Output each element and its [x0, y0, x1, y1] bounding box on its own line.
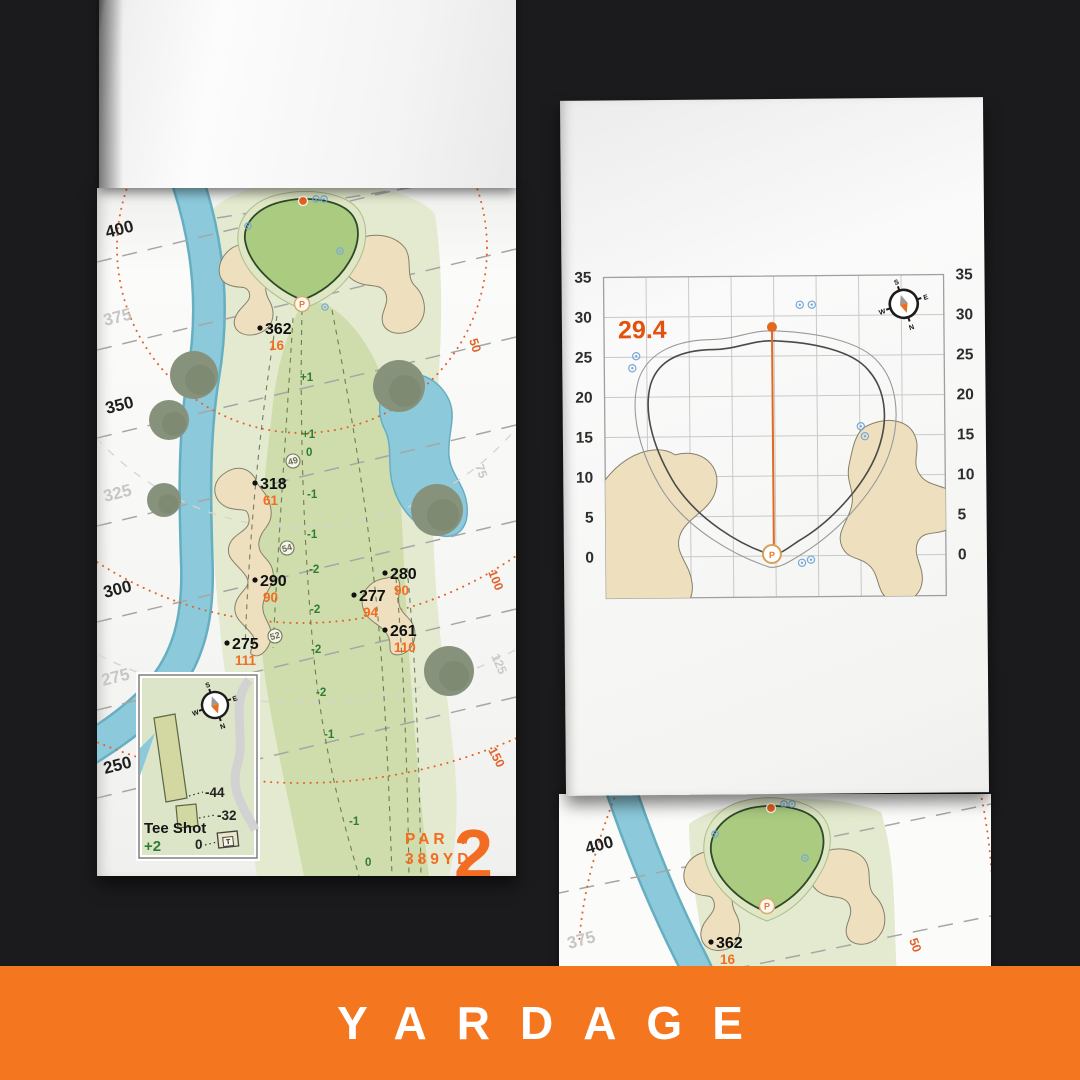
sprinkler-icon — [808, 301, 815, 308]
distance-line-labels: 400 375 350 325 300 275 250 — [99, 217, 135, 778]
axis-tick: 15 — [576, 430, 594, 447]
axis-tick: 35 — [955, 266, 973, 283]
distance-label: 300 — [101, 577, 133, 602]
inset-distance: 0 — [195, 837, 203, 852]
sprinkler-icon — [633, 353, 640, 360]
inset-distance: -44 — [205, 785, 225, 800]
elevation-value: -2 — [309, 564, 319, 576]
pin-position-dot — [767, 322, 777, 332]
axis-tick: 25 — [956, 346, 974, 363]
sprinkler-icon — [629, 365, 636, 372]
sprinkler-icon — [857, 423, 864, 430]
compass-icon: S N E W — [871, 272, 938, 340]
axis-tick: 15 — [957, 426, 975, 443]
elevation-value: +1 — [302, 429, 316, 441]
bunker-right — [839, 420, 961, 603]
carry-distance: 261 — [390, 623, 417, 640]
pin-distance: 16 — [720, 952, 736, 967]
compass-s: S — [893, 279, 900, 287]
carry-distance: 275 — [232, 636, 259, 653]
distance-label: 325 — [101, 481, 133, 506]
banner-title: YARDAGE — [307, 996, 773, 1050]
elevation-value: 0 — [365, 857, 371, 869]
green-depth-value: 29.4 — [618, 316, 667, 344]
bunker-left — [588, 449, 719, 700]
axis-tick: 30 — [956, 306, 973, 323]
compass-w: W — [878, 308, 887, 317]
pin-letter: P — [769, 550, 775, 560]
next-page-preview: P 400 375 362 16 50 — [559, 794, 991, 979]
distance-label: 275 — [99, 665, 131, 690]
axis-tick: 0 — [585, 550, 594, 567]
orange-arc — [579, 794, 619, 944]
elevation-value: -1 — [324, 729, 335, 741]
carry-distance: 362 — [716, 935, 743, 952]
distance-label: 400 — [103, 217, 135, 242]
flipped-blank-page — [99, 0, 516, 188]
elevation-value: -1 — [307, 529, 318, 541]
axis-tick: 20 — [956, 386, 973, 403]
pin-position-dot — [299, 197, 308, 206]
pin-distance: 90 — [394, 583, 409, 598]
arc-label: 125 — [488, 652, 509, 677]
distance-label: 375 — [565, 927, 597, 953]
inset-elevation: +2 — [144, 838, 161, 855]
pin-distance: 90 — [263, 590, 278, 605]
pin-distance: 111 — [235, 653, 257, 668]
green-detail-chart: P 29.4 35 30 25 20 15 10 5 0 35 30 — [560, 97, 989, 796]
compass-e: E — [923, 294, 930, 302]
inset-title: Tee Shot — [144, 820, 206, 837]
tee-box-icon: T — [217, 831, 238, 848]
axis-tick: 25 — [575, 350, 593, 367]
axis-tick: 30 — [575, 310, 592, 327]
carry-distance: 318 — [260, 476, 287, 493]
axis-tick: 20 — [575, 390, 592, 407]
arc-label: 75 — [472, 462, 490, 480]
left-booklet: 400 375 350 325 300 275 250 50 100 150 7… — [85, 0, 525, 880]
elevation-value: 0 — [306, 447, 312, 459]
bunker-right-edge — [947, 490, 989, 599]
carry-distance: 277 — [359, 588, 386, 605]
axis-tick: 0 — [958, 546, 967, 563]
yardage-banner: YARDAGE — [0, 966, 1080, 1080]
axis-tick: 10 — [576, 470, 593, 487]
sprinkler-icon — [798, 559, 805, 566]
arc-label: 100 — [485, 568, 506, 593]
elevation-value: +1 — [300, 372, 314, 384]
pin-distance: 16 — [269, 338, 285, 353]
elevation-value: -1 — [349, 816, 360, 828]
arc-label: 150 — [485, 745, 507, 770]
green-detail-page: P 29.4 35 30 25 20 15 10 5 0 35 30 — [560, 97, 989, 796]
hole-map-page: 400 375 350 325 300 275 250 50 100 150 7… — [97, 188, 516, 876]
yardage-book-photo: 400 375 350 325 300 275 250 50 100 150 7… — [0, 0, 1080, 1080]
hole-map: 400 375 350 325 300 275 250 50 100 150 7… — [97, 188, 516, 876]
elevation-value: -2 — [316, 687, 326, 699]
axis-tick: 35 — [574, 270, 592, 287]
axis-tick: 10 — [957, 466, 974, 483]
sprinkler-icon — [807, 556, 814, 563]
right-booklet: P 400 375 362 16 50 — [557, 99, 993, 985]
axis-ticks-left: 35 30 25 20 15 10 5 0 — [574, 270, 594, 567]
inset-distance: -32 — [217, 808, 237, 823]
sprinkler-icon — [796, 301, 803, 308]
axis-ticks-right: 35 30 25 20 15 10 5 0 — [955, 266, 975, 563]
arc-label: 50 — [906, 936, 924, 954]
elevation-value: -1 — [307, 489, 318, 501]
arc-labels: 50 100 150 75 125 — [466, 337, 509, 770]
axis-tick: 5 — [958, 506, 967, 523]
arc-label: 50 — [466, 337, 484, 355]
pin-letter: P — [764, 902, 770, 912]
orange-arc — [979, 794, 991, 954]
pin-position-dot — [767, 804, 776, 813]
pin-distance: 61 — [263, 493, 279, 508]
pin-distance: 94 — [363, 605, 379, 620]
carry-distance: 362 — [265, 321, 292, 338]
next-page-map: P 400 375 362 16 50 — [559, 794, 991, 974]
carry-distance: 280 — [390, 566, 417, 583]
axis-tick: 5 — [585, 510, 594, 527]
pin-distance: 110 — [394, 640, 416, 655]
distance-label: 400 — [583, 832, 615, 858]
compass-n: N — [908, 324, 915, 332]
tee-shot-inset: -44 -32 Tee Shot +2 0 T — [139, 674, 257, 858]
distance-label: 350 — [103, 393, 135, 418]
elevation-value: -2 — [310, 604, 320, 616]
hole-number: 2 — [454, 815, 493, 876]
pin-letter: P — [299, 300, 305, 310]
distance-label: 375 — [101, 305, 133, 330]
elevation-value: -2 — [311, 644, 321, 656]
carry-distance: 290 — [260, 573, 287, 590]
